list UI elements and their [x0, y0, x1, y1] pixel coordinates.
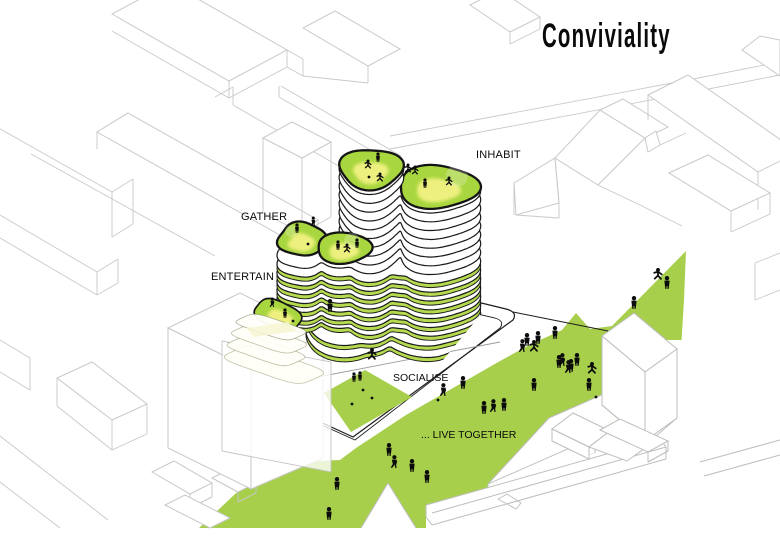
svg-text:SOCIALISE: SOCIALISE	[393, 372, 448, 384]
svg-text:GATHER: GATHER	[241, 211, 287, 223]
svg-text:Conviviality: Conviviality	[542, 17, 671, 55]
svg-text:ENTERTAIN: ENTERTAIN	[211, 271, 274, 283]
svg-text:INHABIT: INHABIT	[476, 149, 521, 161]
svg-text:... LIVE TOGETHER: ... LIVE TOGETHER	[421, 429, 517, 441]
